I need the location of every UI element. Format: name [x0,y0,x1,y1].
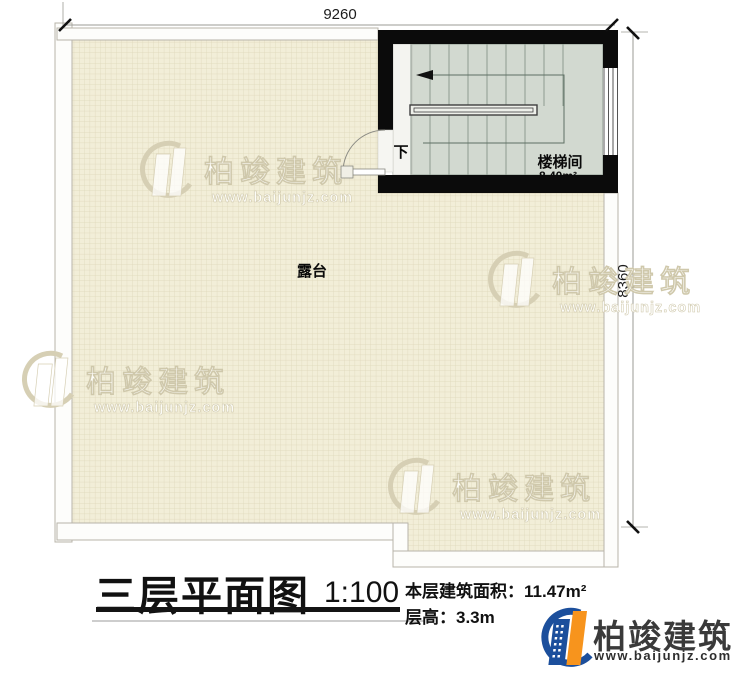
floor-area-label: 本层建筑面积： [405,582,524,601]
parapet-right [604,193,618,567]
watermark-website: www.baijunjz.com [459,507,601,523]
floor-height-row: 层高：3.3m [405,603,495,628]
parapet-top [57,28,378,40]
company-logo-icon[interactable] [536,603,594,677]
stair-down-label: 下 [393,144,408,161]
watermark-company: 柏竣建筑 [204,155,348,189]
floor-height-label: 层高： [405,608,456,627]
parapet-bottom-left [57,523,393,540]
parapet-bottom-right [393,551,618,567]
terrace-label: 露台 [297,262,327,280]
stairwell-window [603,68,618,155]
floor-area-row: 本层建筑面积：11.47m² [405,577,586,602]
stair-handrail [410,105,537,115]
stairwell-area-label: 8.40m² [539,169,577,183]
watermark-logo-icon [25,353,72,406]
floor-height-value: 3.3m [456,608,495,627]
floor-area-value: 11.47m² [524,582,586,601]
title-underline [96,607,400,612]
page-title: 三层平面图 [95,562,310,622]
watermark-company: 柏竣建筑 [86,365,230,399]
title-underline-thin [92,620,424,622]
dimension-top-value: 9260 [323,6,356,23]
parapet-left [55,23,72,542]
floor-plan-page: 楼梯间 8.40m² 下 露台 9260 8360 [0,0,750,680]
watermark-company: 柏竣建筑 [552,265,696,299]
stairwell-room: 楼梯间 8.40m² 下 [341,30,618,193]
dimension-top: 9260 [59,2,618,31]
watermark-website: www.baijunjz.com [93,400,235,416]
watermark-website: www.baijunjz.com [211,190,353,206]
watermark-company: 柏竣建筑 [452,472,596,506]
company-logo-website[interactable]: www.baijunjz.com [594,648,732,663]
drawing-scale: 1:100 [324,576,399,610]
watermark-website: www.baijunjz.com [559,300,701,316]
